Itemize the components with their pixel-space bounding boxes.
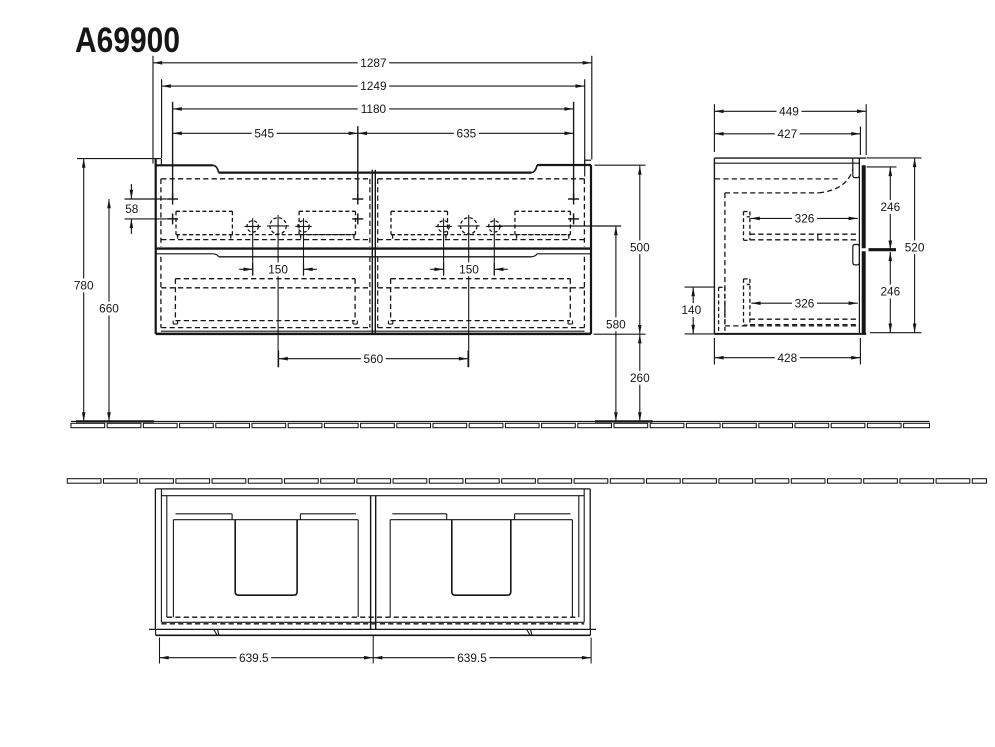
svg-text:580: 580: [606, 317, 626, 331]
svg-text:545: 545: [254, 126, 274, 140]
svg-text:1287: 1287: [360, 56, 386, 70]
svg-text:639.5: 639.5: [457, 651, 487, 665]
svg-text:780: 780: [74, 279, 94, 293]
svg-text:520: 520: [905, 240, 925, 254]
svg-text:326: 326: [795, 212, 815, 226]
svg-text:58: 58: [125, 202, 139, 216]
svg-text:560: 560: [364, 352, 384, 366]
svg-text:150: 150: [268, 262, 288, 276]
svg-text:449: 449: [779, 104, 799, 118]
svg-text:428: 428: [777, 351, 797, 365]
svg-text:260: 260: [630, 371, 650, 385]
svg-text:246: 246: [880, 200, 900, 214]
svg-text:639.5: 639.5: [239, 651, 269, 665]
svg-text:A69900: A69900: [75, 20, 180, 60]
svg-text:1180: 1180: [361, 102, 387, 116]
svg-text:427: 427: [777, 127, 797, 141]
svg-text:500: 500: [630, 240, 650, 254]
svg-text:635: 635: [457, 126, 477, 140]
svg-text:326: 326: [795, 296, 815, 310]
svg-text:660: 660: [99, 302, 119, 316]
svg-text:246: 246: [880, 285, 900, 299]
svg-text:140: 140: [681, 303, 701, 317]
svg-text:1249: 1249: [360, 79, 386, 93]
svg-text:150: 150: [459, 262, 479, 276]
